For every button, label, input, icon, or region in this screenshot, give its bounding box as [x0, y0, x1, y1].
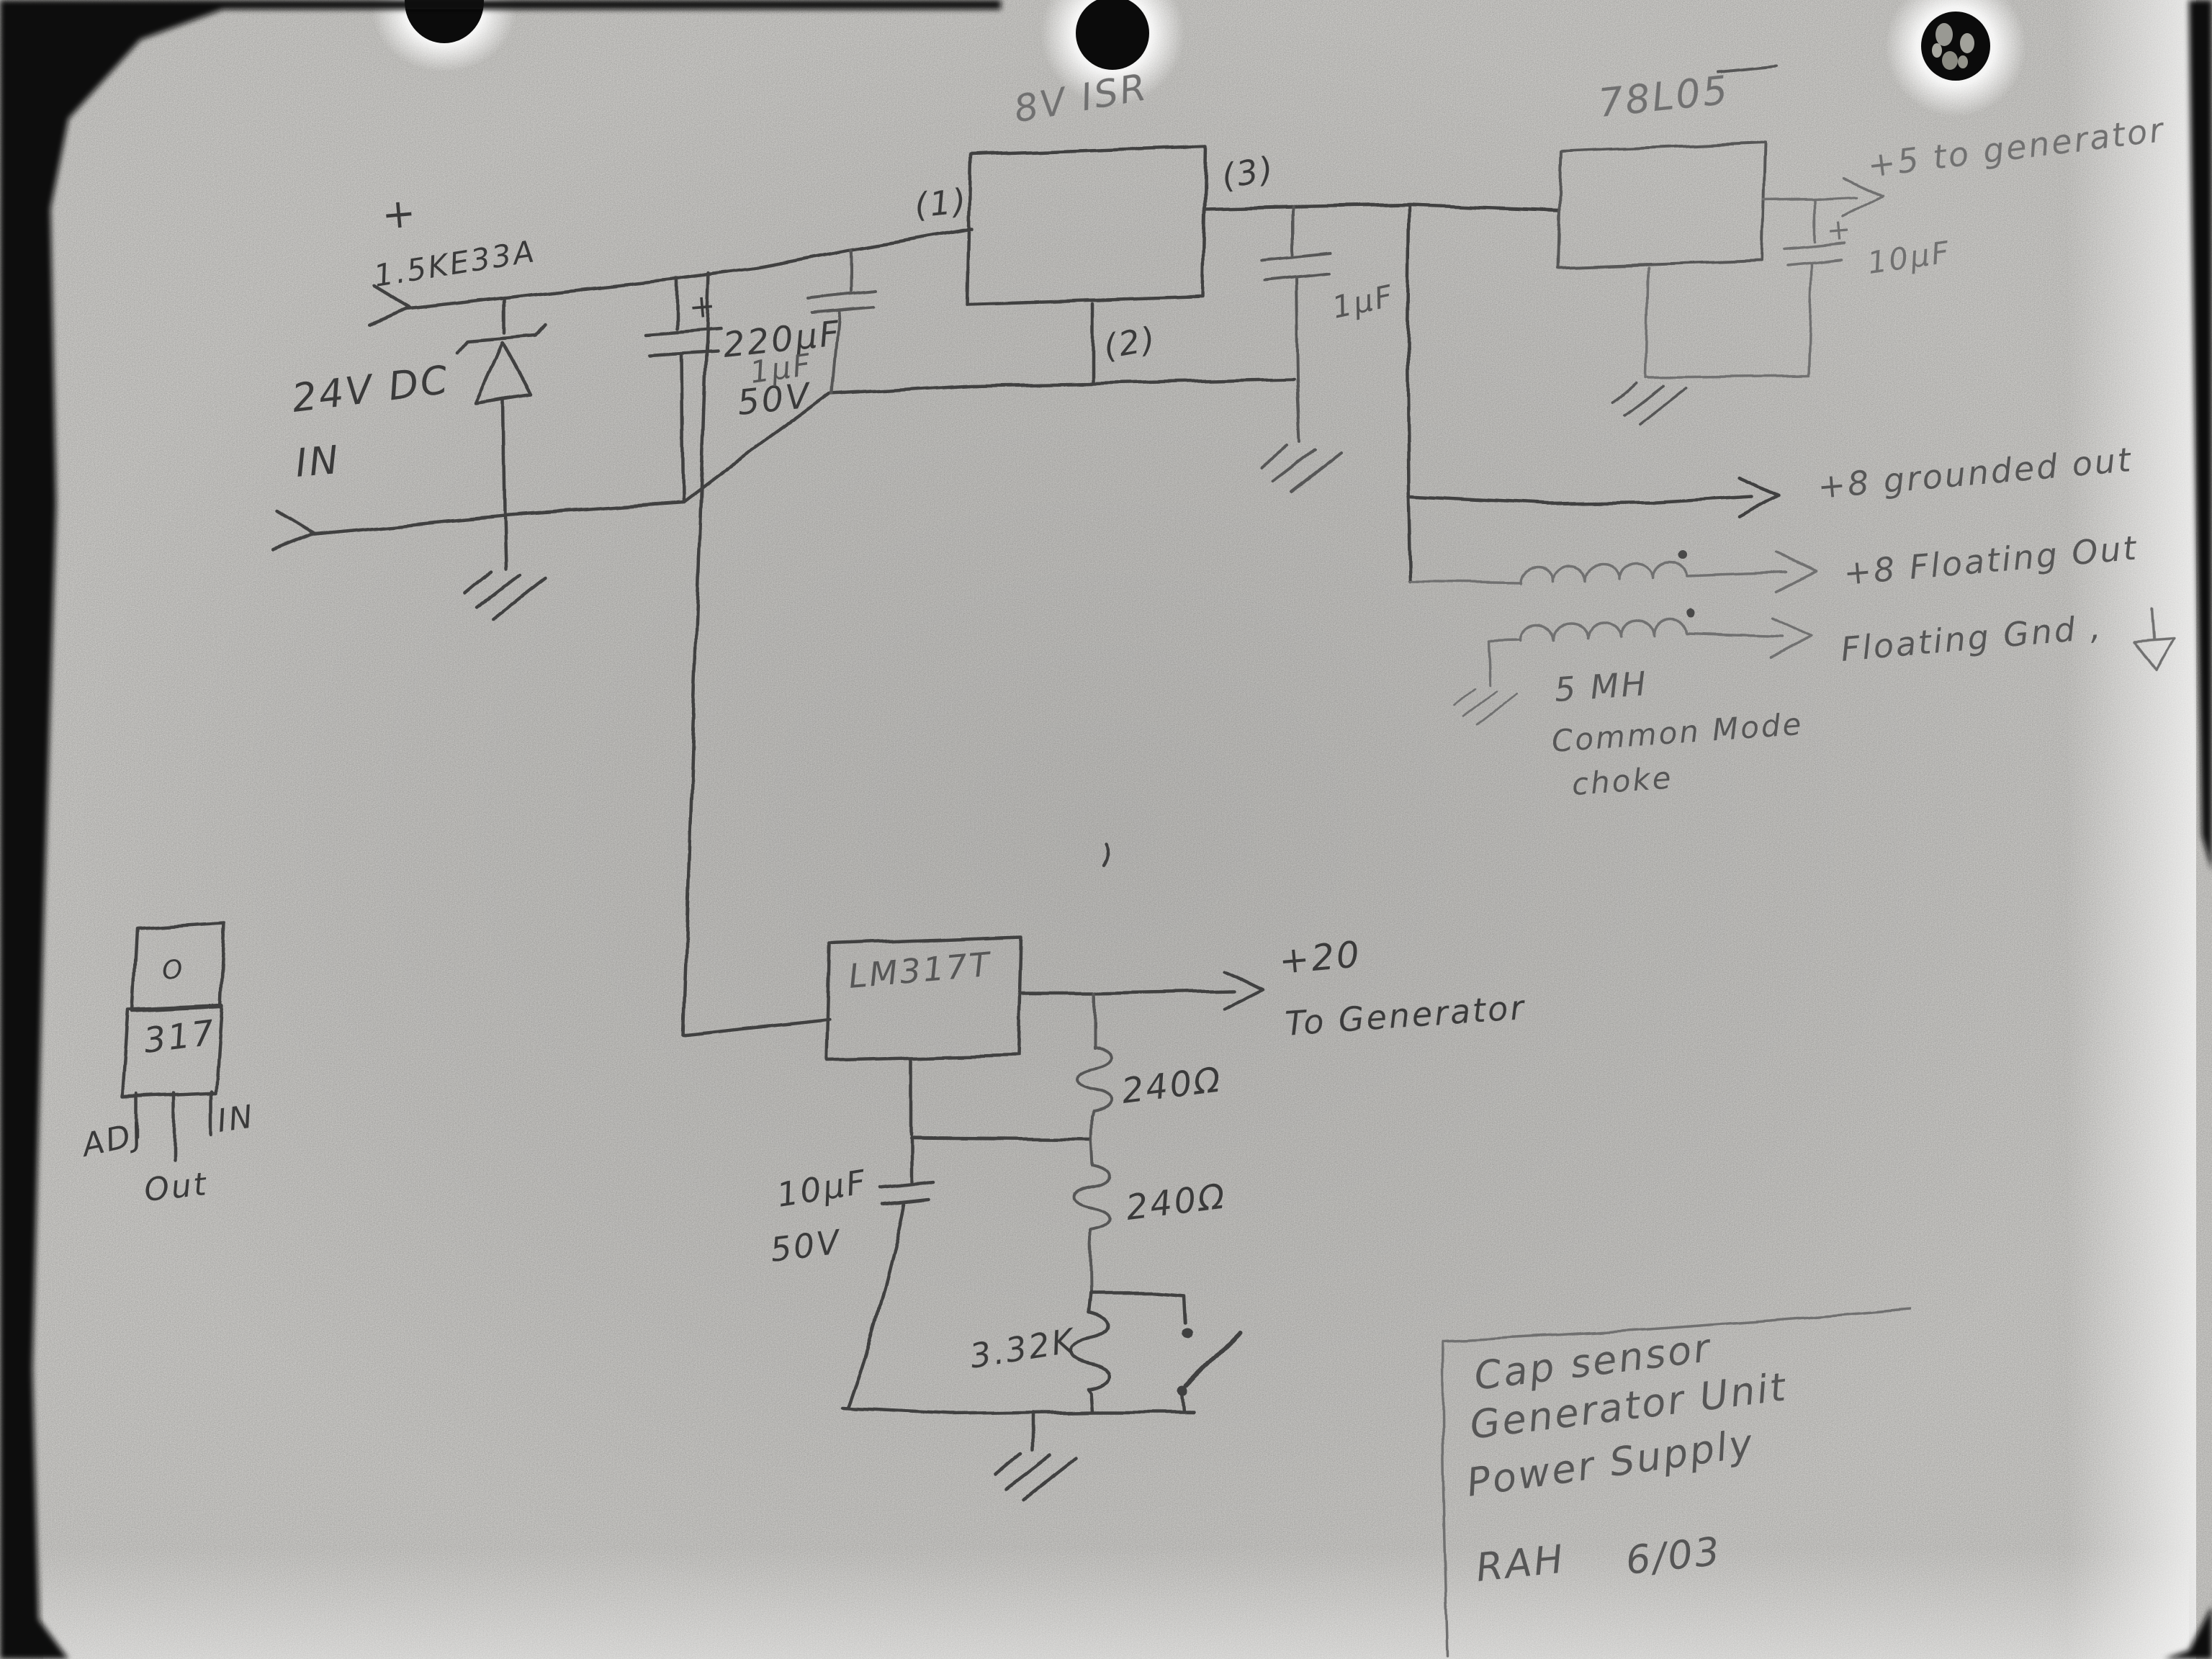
- label-pin1: (1): [913, 181, 970, 225]
- label-choke-value: 5 MH: [1553, 664, 1650, 709]
- label-title-author: RAH: [1474, 1536, 1568, 1591]
- label-pkg-in: IN: [215, 1098, 256, 1140]
- scanned-schematic-page: + 1.5KE33A 24V DC IN + 220µF 50V 1µF 8V …: [0, 0, 2212, 1659]
- label-pkg-tab: O: [161, 955, 186, 986]
- label-choke-line2: choke: [1570, 760, 1674, 802]
- label-bulk-cap-plus: +: [688, 287, 719, 326]
- label-input-plus: +: [380, 189, 420, 239]
- label-pkg-out: Out: [143, 1166, 210, 1209]
- edge-glow-right: [2067, 0, 2196, 1659]
- label-20v-output: +20: [1277, 933, 1363, 982]
- edge-glow-bottom: [43, 1548, 2189, 1659]
- label-cap5-plus: +: [1825, 212, 1854, 248]
- label-input-in: IN: [294, 437, 343, 486]
